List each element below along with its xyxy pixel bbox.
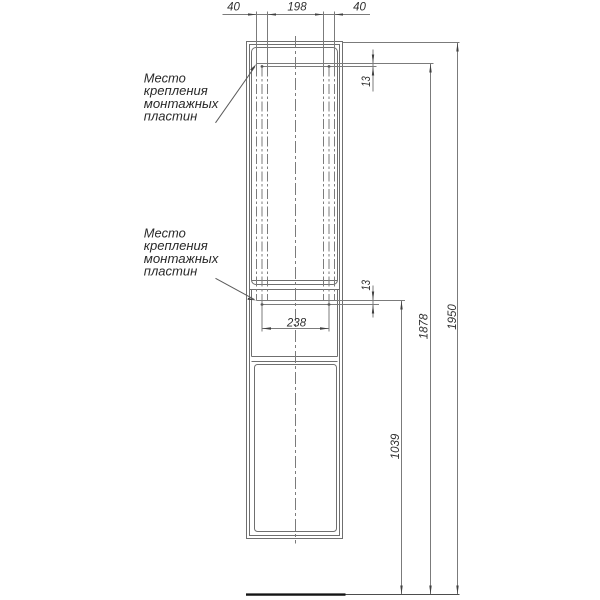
svg-text:40: 40 [227, 2, 240, 14]
svg-text:238: 238 [286, 317, 307, 329]
svg-text:1039: 1039 [390, 433, 402, 459]
svg-text:13: 13 [361, 280, 373, 291]
svg-text:198: 198 [287, 2, 307, 14]
svg-text:13: 13 [361, 76, 373, 87]
svg-text:1878: 1878 [418, 313, 430, 339]
svg-text:1950: 1950 [447, 304, 459, 330]
svg-text:40: 40 [353, 2, 366, 14]
svg-text:пластин: пластин [144, 108, 198, 123]
svg-text:пластин: пластин [144, 264, 198, 279]
